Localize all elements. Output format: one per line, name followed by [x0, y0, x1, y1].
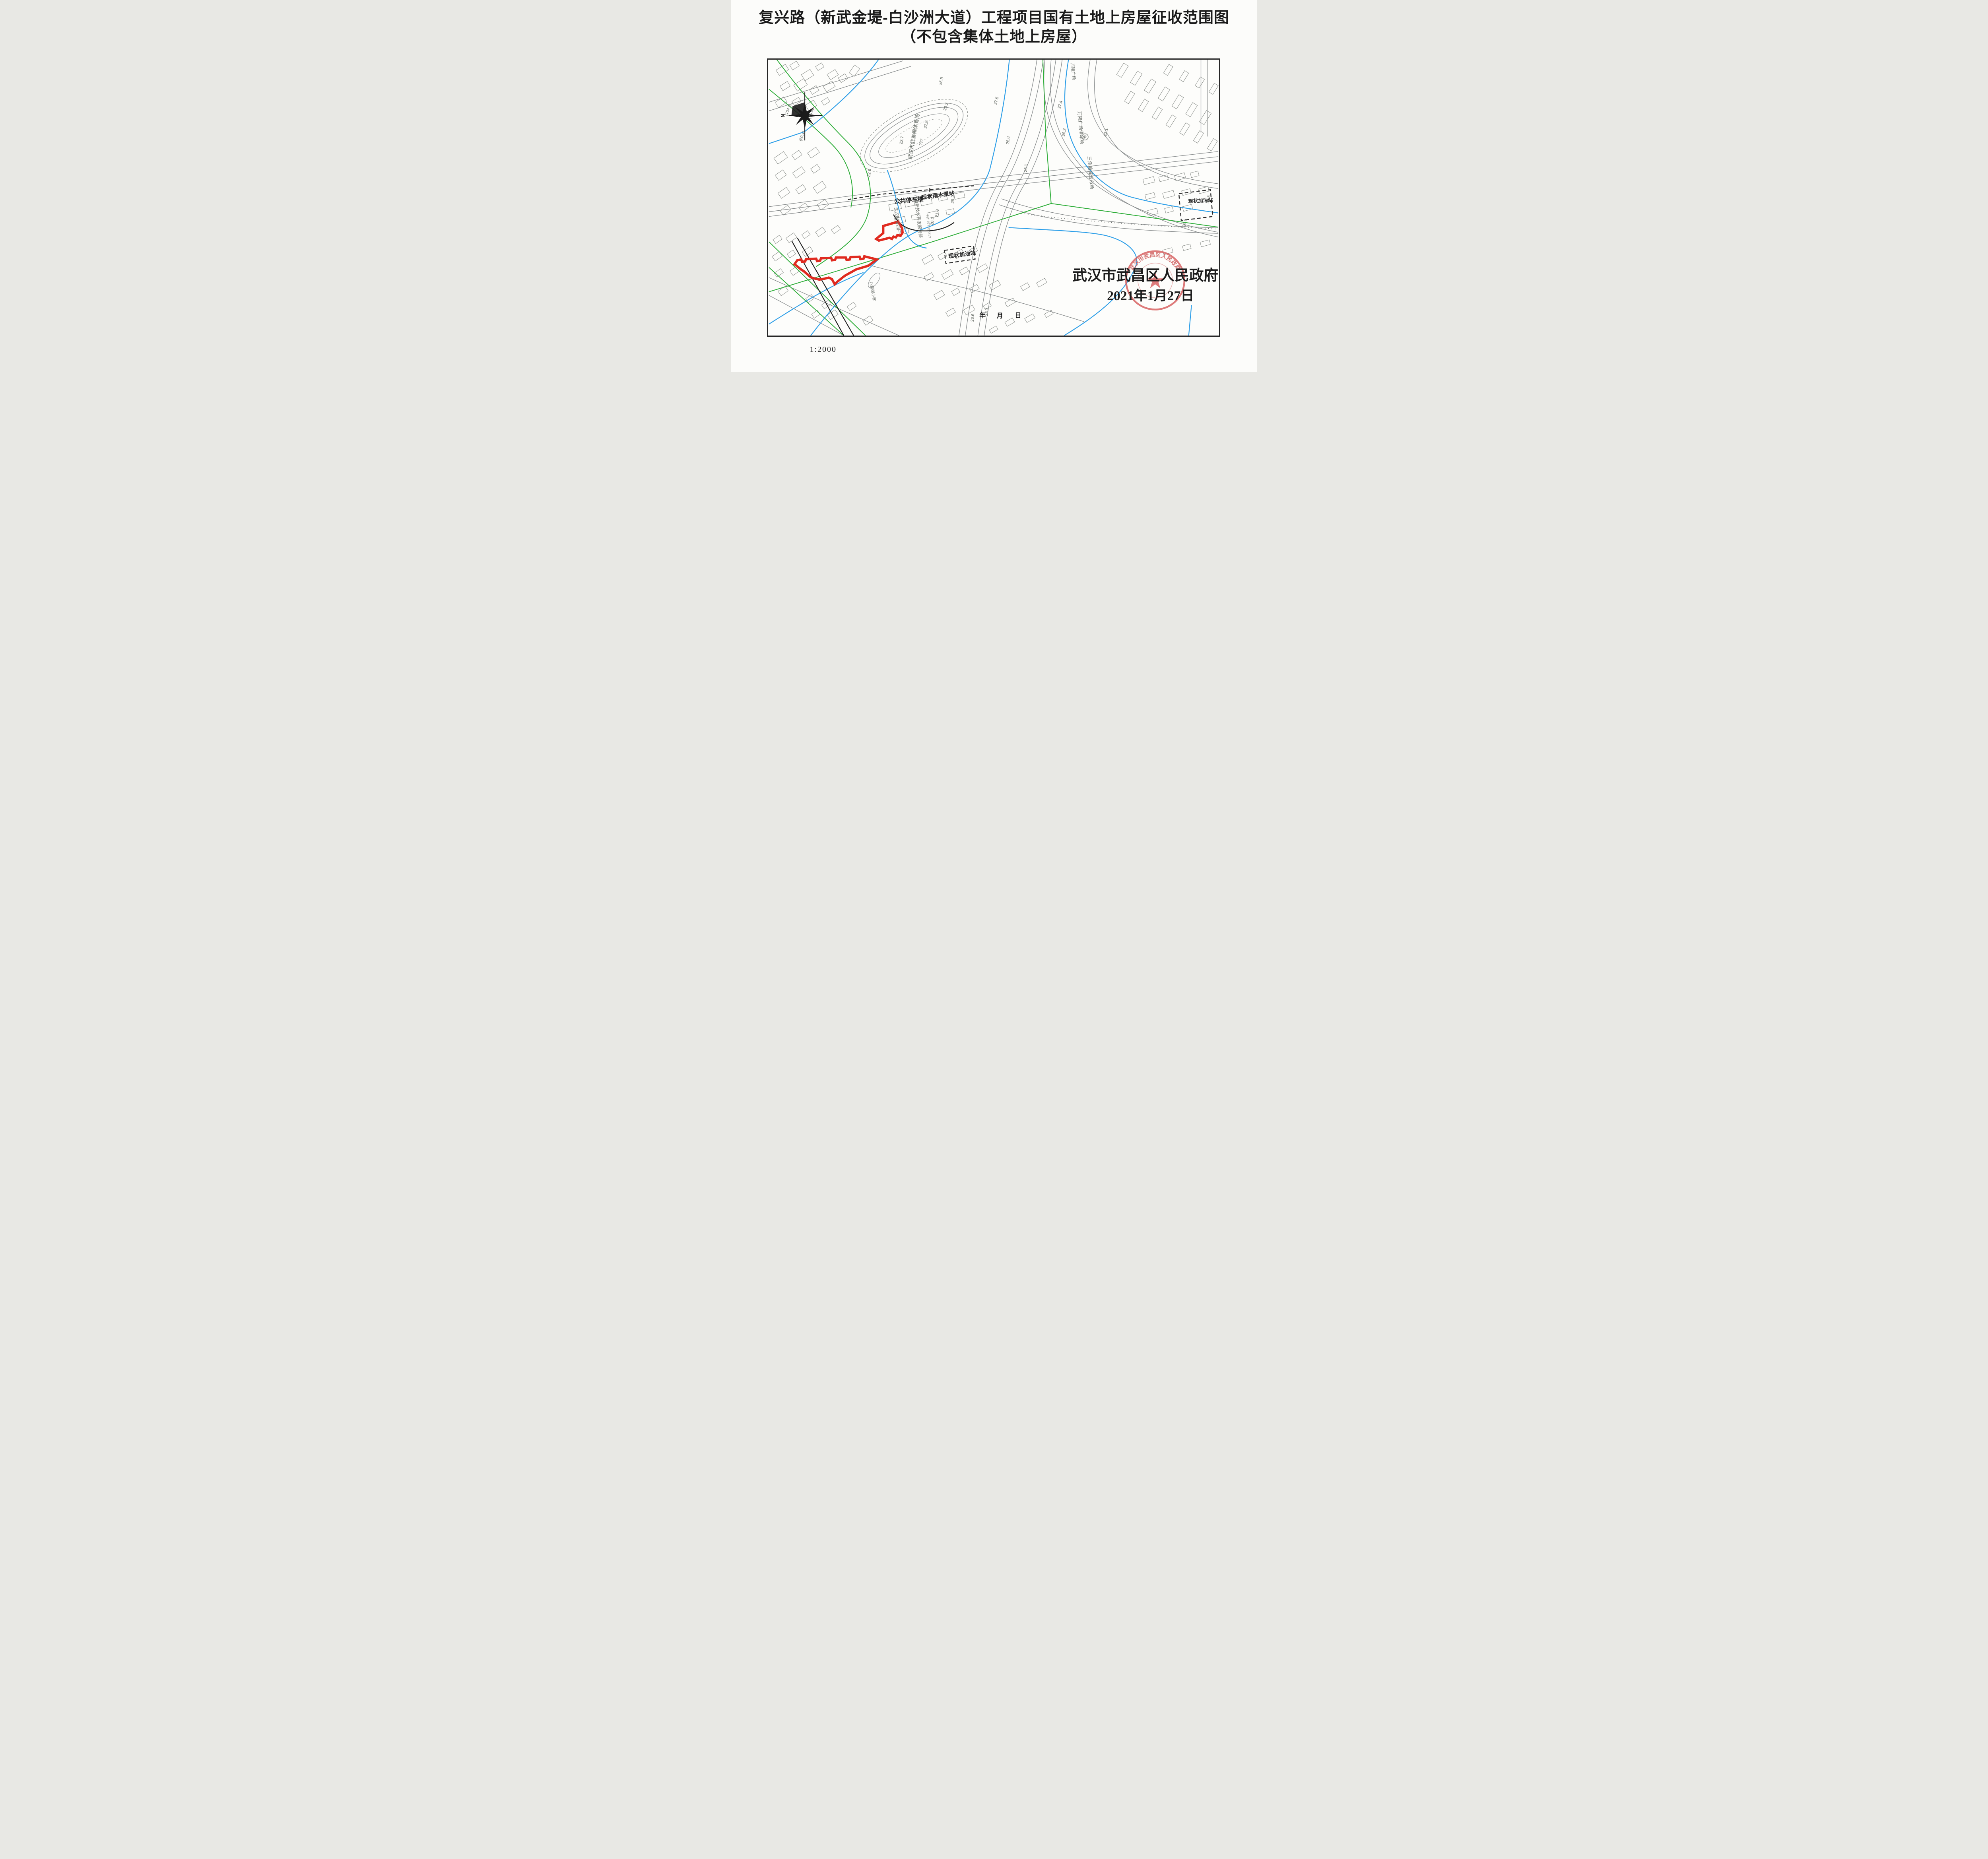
building	[821, 97, 829, 105]
authority-name: 武汉市武昌区人民政府	[1072, 267, 1218, 283]
building	[813, 181, 826, 194]
building	[1020, 283, 1029, 291]
elevation: 23.2	[943, 102, 949, 111]
label-wanlong-plaza: 万隆广场	[1070, 62, 1077, 80]
building	[951, 288, 960, 295]
building	[934, 290, 945, 300]
document-title: 复兴路（新武金堤-白沙洲大道）工程项目国有土地上房屋征收范围图 （不包含集体土地…	[731, 9, 1257, 46]
road-ew-3	[769, 161, 1218, 217]
elevation: 20.2	[930, 217, 935, 225]
building	[807, 147, 819, 158]
building	[1185, 103, 1197, 117]
building	[1200, 240, 1210, 247]
building	[774, 151, 788, 164]
building	[1005, 298, 1015, 307]
map-scale: 1:2000	[810, 345, 837, 354]
building	[1143, 177, 1155, 185]
building	[786, 233, 796, 243]
building	[790, 61, 799, 70]
building	[924, 273, 934, 281]
building	[1166, 115, 1176, 128]
building	[945, 308, 955, 316]
date-field-day: 日	[1015, 312, 1021, 319]
building	[1159, 175, 1168, 182]
road-topleft-diag1	[769, 61, 903, 102]
building	[792, 167, 805, 178]
building	[1116, 63, 1128, 78]
authority-date: 2021年1月27日	[1107, 288, 1194, 303]
elevation: 26.1	[1023, 164, 1029, 172]
building	[989, 280, 1000, 290]
building	[1024, 314, 1035, 322]
scanned-document-page: 复兴路（新武金堤-白沙洲大道）工程项目国有土地上房屋征收范围图 （不包含集体土地…	[731, 0, 1257, 372]
ramp-ne2	[1094, 60, 1218, 188]
building	[959, 267, 969, 275]
label-stadium: 武汉市武泰闸体育场	[907, 113, 920, 160]
building	[815, 63, 824, 71]
building	[1179, 123, 1190, 136]
building	[1145, 192, 1155, 200]
building	[977, 264, 988, 272]
building	[1124, 91, 1135, 104]
building	[1193, 131, 1204, 144]
building	[1181, 189, 1191, 196]
elevation: 22.7	[899, 136, 905, 145]
cadastral-map: N 公共停车楼 现状雨水泵站 现状加油站 现状加油站 年 月 日 武汉市武泰闸体…	[768, 60, 1219, 336]
building	[1172, 95, 1184, 109]
date-field-month: 月	[996, 312, 1003, 319]
building	[1036, 278, 1047, 287]
building	[778, 187, 790, 198]
elevation: 26.8	[1006, 136, 1011, 144]
page-title-line2: （不包含集体土地上房屋）	[731, 28, 1257, 46]
road-ew-2	[769, 157, 1218, 212]
authority-block: 武汉市武昌区人民政府 2021年1月27日	[1072, 267, 1218, 303]
building	[802, 231, 810, 239]
building	[1195, 77, 1204, 88]
elevation: 26.3	[984, 308, 990, 316]
label-parking-tower: 公共停车楼	[893, 196, 924, 205]
elevation: 26.6	[970, 313, 975, 322]
building	[1152, 107, 1162, 120]
elevation: 22.8	[923, 120, 929, 129]
building	[775, 170, 786, 180]
blue-line-topleft	[769, 60, 878, 144]
label-paint-factory: 武汉制漆四厂	[893, 207, 901, 234]
building	[1209, 83, 1218, 94]
page-title-line1: 复兴路（新武金堤-白沙洲大道）工程项目国有土地上房屋征收范围图	[731, 9, 1257, 27]
building	[815, 227, 825, 237]
elevation: 29.2	[951, 195, 956, 204]
building	[812, 310, 820, 318]
building	[1207, 138, 1217, 151]
map-frame: N 公共停车楼 现状雨水泵站 现状加油站 现状加油站 年 月 日 武汉市武泰闸体…	[767, 58, 1220, 337]
label-primary-school: 八铺街小学	[868, 281, 877, 301]
elevation: 22.6	[867, 169, 872, 177]
building	[989, 326, 998, 334]
ramp-ne1	[1087, 60, 1218, 184]
building	[773, 235, 782, 244]
building	[831, 225, 840, 234]
elevation: 27.5	[993, 96, 1000, 105]
elevation: 26.9	[938, 76, 944, 85]
building	[1044, 310, 1053, 318]
black-diag-2	[797, 238, 854, 336]
building	[810, 164, 820, 173]
building	[969, 284, 979, 293]
building	[938, 252, 947, 260]
building	[787, 250, 795, 258]
building	[1182, 244, 1191, 251]
elevation: 21.0	[935, 209, 940, 217]
building	[1147, 208, 1158, 216]
building	[847, 302, 856, 310]
annotation-1: (45.4)	[807, 108, 815, 119]
label-sanjiaotang-market: 三角塘综合市场	[1086, 156, 1095, 189]
blue-line-right-bottom	[1188, 305, 1191, 336]
building	[1130, 71, 1142, 85]
annotation-0: (104.2)	[784, 103, 792, 116]
building	[796, 184, 806, 194]
building	[1190, 171, 1199, 178]
building	[1005, 318, 1015, 326]
building	[862, 316, 873, 325]
building	[1158, 87, 1170, 101]
building	[827, 70, 839, 80]
parking-icon-letter: P	[1083, 135, 1086, 140]
building	[1179, 71, 1188, 82]
building	[809, 85, 819, 94]
building	[922, 254, 933, 264]
elevation: 27.4	[1057, 100, 1064, 109]
dashed-box-gas-right	[1178, 190, 1212, 220]
building	[776, 64, 788, 76]
building	[1144, 79, 1156, 93]
label-stadium-sub: ???	[918, 138, 924, 146]
building	[780, 82, 790, 91]
building	[1162, 190, 1174, 199]
green-line-tl1	[777, 60, 870, 267]
elevation: 24.6	[1182, 219, 1188, 227]
building	[1163, 64, 1173, 76]
building	[1165, 206, 1173, 213]
building	[942, 270, 953, 279]
elevation: 26.2	[1061, 128, 1067, 137]
label-gas-station-left: 现状加油站	[948, 249, 976, 260]
building	[792, 150, 802, 160]
building	[823, 81, 835, 92]
building	[1138, 99, 1148, 112]
